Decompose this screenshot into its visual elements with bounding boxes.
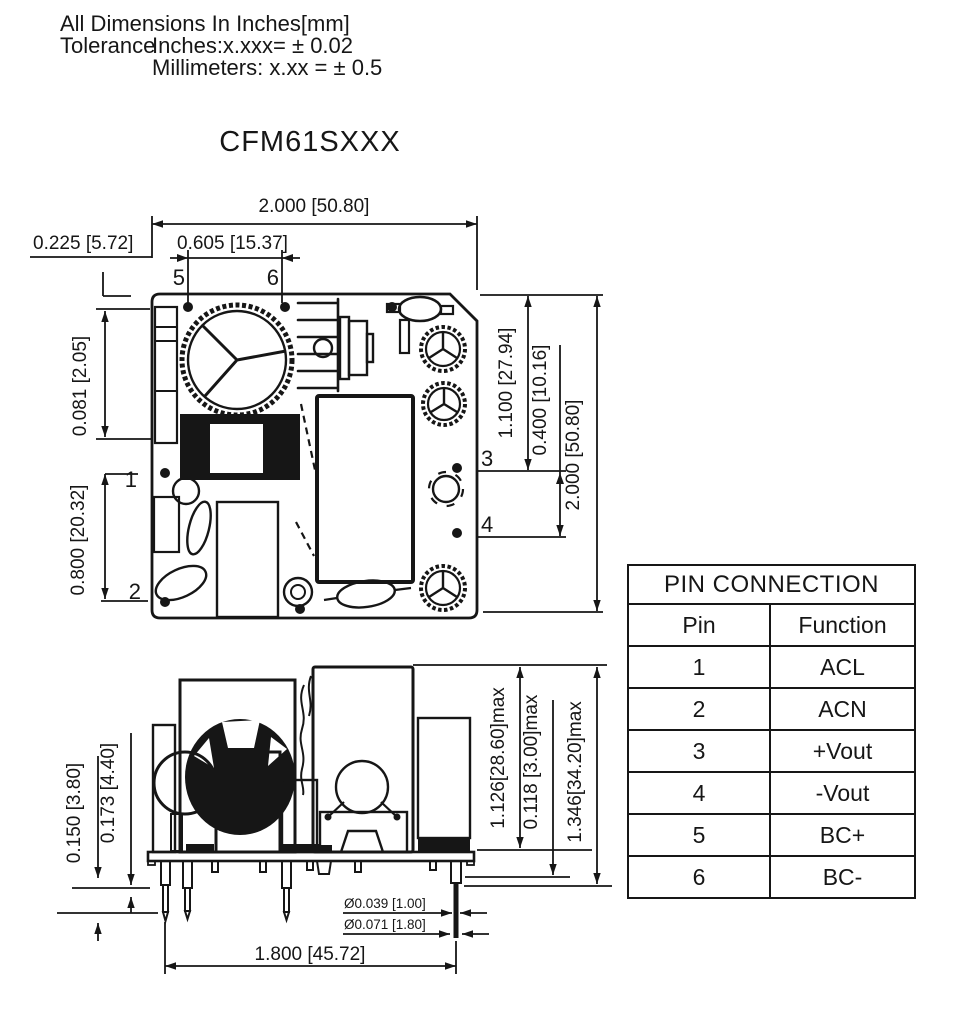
dim-side-left-outer-label: 0.150 [3.80] — [64, 763, 85, 863]
pin-number: 2 — [628, 688, 770, 730]
pin-connection-table: PIN CONNECTION Pin Function 1 ACL 2 ACN … — [627, 564, 916, 899]
pin-number: 6 — [628, 856, 770, 898]
pin-function: -Vout — [770, 772, 915, 814]
side-view-dimensions: 0.150 [3.80] 0.173 [4.40] 1.126[28.60]ma… — [57, 665, 612, 974]
input-choke — [180, 414, 300, 480]
bulk-capacitor — [182, 305, 292, 415]
pins — [161, 861, 461, 921]
top-view-pcb — [151, 294, 477, 618]
edge-component — [154, 497, 179, 552]
to220-package — [340, 317, 373, 379]
pin-function: ACL — [770, 646, 915, 688]
wire-loop — [301, 676, 311, 795]
pin-function: BC+ — [770, 814, 915, 856]
table-header-row: Pin Function — [628, 604, 915, 646]
pin6-callout: 6 — [267, 265, 279, 290]
pin2-callout: 2 — [129, 579, 141, 604]
dim-left-lower-label: 0.800 [20.32] — [68, 485, 89, 596]
table-row: 1 ACL — [628, 646, 915, 688]
table-row: 3 +Vout — [628, 730, 915, 772]
table-row: 6 BC- — [628, 856, 915, 898]
pin-function: +Vout — [770, 730, 915, 772]
pin-function: BC- — [770, 856, 915, 898]
dim-top-width-label: 2.000 [50.80] — [259, 196, 370, 217]
output-capacitor-2 — [423, 383, 465, 425]
pcb-module — [217, 502, 278, 617]
output-capacitor-1 — [421, 327, 465, 371]
dim-right-inner-label: 1.100 [27.94] — [496, 328, 517, 439]
dim-left-offset-label: 0.225 [5.72] — [33, 233, 133, 254]
output-capacitor-3 — [421, 566, 465, 610]
table-title-row: PIN CONNECTION — [628, 565, 915, 604]
small-capacitor — [429, 472, 463, 506]
diode — [183, 499, 215, 556]
dim-total-height-label: 1.346[34.20]max — [565, 701, 586, 843]
capacitor-small — [173, 478, 199, 504]
pin5-callout: 5 — [173, 265, 185, 290]
table-row: 5 BC+ — [628, 814, 915, 856]
dim-right-mid-label: 0.400 [10.16] — [530, 345, 551, 456]
pin-number: 5 — [628, 814, 770, 856]
drawing-sheet: All Dimensions In Inches[mm] Tolerance I… — [0, 0, 961, 1024]
col-header-function: Function — [770, 604, 915, 646]
pin-number: 4 — [628, 772, 770, 814]
dim-pin-dia2-label: Ø0.071 [1.80] — [344, 917, 426, 932]
heatsink — [298, 299, 338, 391]
pin3-callout: 3 — [481, 446, 493, 471]
table-title: PIN CONNECTION — [628, 565, 915, 604]
diode-2 — [151, 559, 212, 607]
dim-body-height-label: 1.126[28.60]max — [488, 687, 509, 829]
pin-function: ACN — [770, 688, 915, 730]
table-row: 4 -Vout — [628, 772, 915, 814]
dim-pin-dia1-label: Ø0.039 [1.00] — [344, 896, 426, 911]
dim-right-outer-label: 2.000 [50.80] — [563, 400, 584, 511]
toroid-small — [284, 578, 312, 606]
dim-pin5-pin6-label: 0.605 [15.37] — [177, 233, 288, 254]
pcb-board-side — [148, 852, 474, 865]
main-transformer — [317, 396, 413, 582]
side-component-right — [418, 718, 470, 851]
dim-left-upper-label: 0.081 [2.05] — [70, 336, 91, 436]
pin-number: 1 — [628, 646, 770, 688]
col-header-pin: Pin — [628, 604, 770, 646]
dimensioned-pin — [454, 883, 459, 938]
pin1-callout: 1 — [125, 467, 137, 492]
table-row: 2 ACN — [628, 688, 915, 730]
dim-standoff-label: 0.118 [3.00]max — [521, 694, 542, 829]
pin-number: 3 — [628, 730, 770, 772]
side-round-component — [320, 761, 407, 852]
pin4-callout: 4 — [481, 512, 493, 537]
side-main-transformer — [313, 667, 413, 852]
dim-pin-span-label: 1.800 [45.72] — [255, 944, 366, 965]
dim-side-left-inner-label: 0.173 [4.40] — [98, 743, 119, 843]
